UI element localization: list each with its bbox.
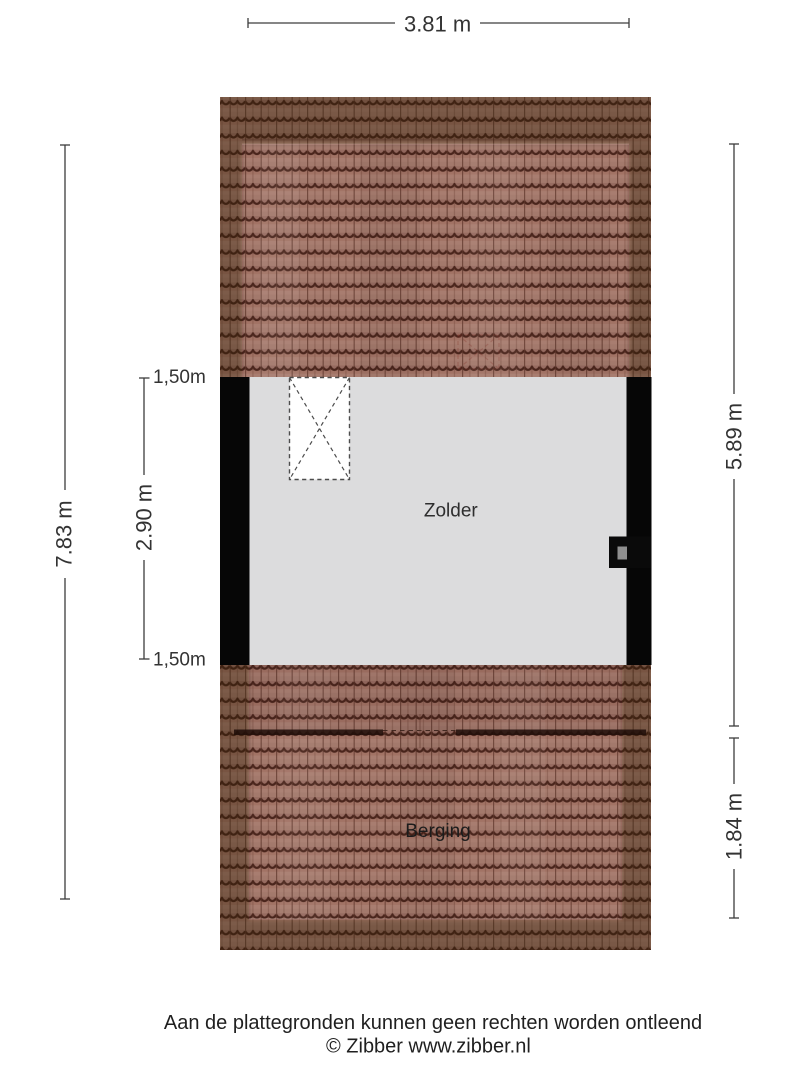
svg-text:5.89 m: 5.89 m: [722, 403, 747, 470]
svg-text:3.81 m: 3.81 m: [404, 11, 471, 36]
svg-text:1,50m: 1,50m: [153, 650, 206, 671]
svg-text:1,50m: 1,50m: [153, 367, 206, 388]
svg-text:© Zibber www.zibber.nl: © Zibber www.zibber.nl: [326, 1036, 531, 1058]
svg-text:Aan de plattegronden kunnen ge: Aan de plattegronden kunnen geen rechten…: [164, 1012, 702, 1034]
svg-text:Zolder: Zolder: [424, 501, 479, 522]
svg-text:2.90 m: 2.90 m: [132, 484, 157, 551]
svg-text:Berging: Berging: [405, 821, 471, 842]
svg-text:7.83 m: 7.83 m: [52, 500, 77, 567]
svg-text:1.84 m: 1.84 m: [722, 793, 747, 860]
